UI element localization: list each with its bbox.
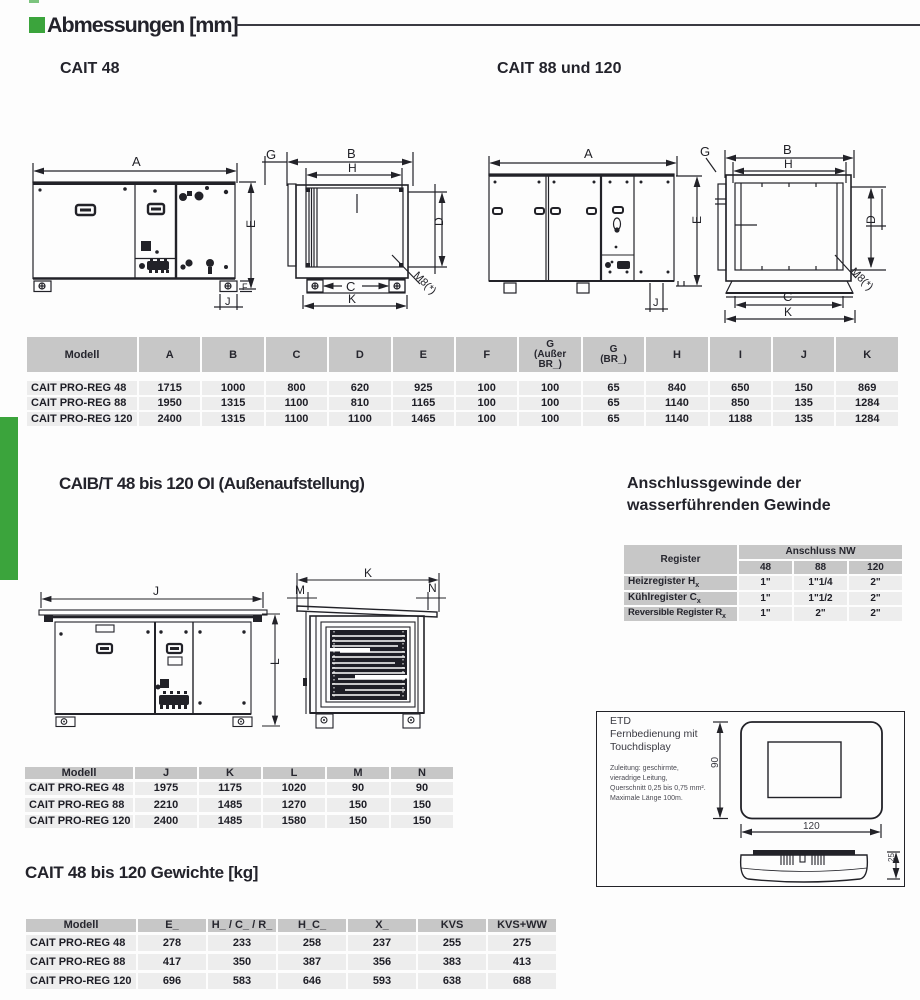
svg-text:G: G (700, 144, 710, 159)
svg-text:A: A (132, 154, 141, 169)
svg-text:E: E (244, 220, 258, 228)
svg-text:L: L (268, 658, 282, 665)
svg-text:D: D (864, 215, 878, 224)
svg-text:J: J (225, 296, 231, 308)
svg-text:N: N (428, 581, 437, 595)
svg-text:120: 120 (803, 821, 820, 832)
svg-text:M: M (295, 583, 305, 597)
svg-text:90: 90 (710, 756, 721, 768)
svg-text:D: D (432, 217, 446, 226)
svg-text:H: H (348, 161, 357, 175)
svg-text:B: B (783, 142, 792, 157)
svg-text:25: 25 (887, 853, 896, 862)
svg-text:K: K (784, 305, 792, 319)
svg-text:G: G (266, 147, 276, 162)
svg-text:K: K (348, 292, 356, 306)
svg-text:E: E (690, 216, 704, 224)
svg-text:B: B (347, 146, 356, 161)
svg-text:K: K (364, 566, 372, 580)
svg-text:H: H (784, 157, 793, 171)
svg-text:J: J (153, 584, 159, 598)
svg-text:J: J (653, 297, 659, 309)
svg-text:F: F (242, 282, 248, 292)
svg-text:A: A (584, 146, 593, 161)
svg-text:C: C (783, 289, 792, 304)
svg-text:M8(*): M8(*) (411, 270, 438, 297)
